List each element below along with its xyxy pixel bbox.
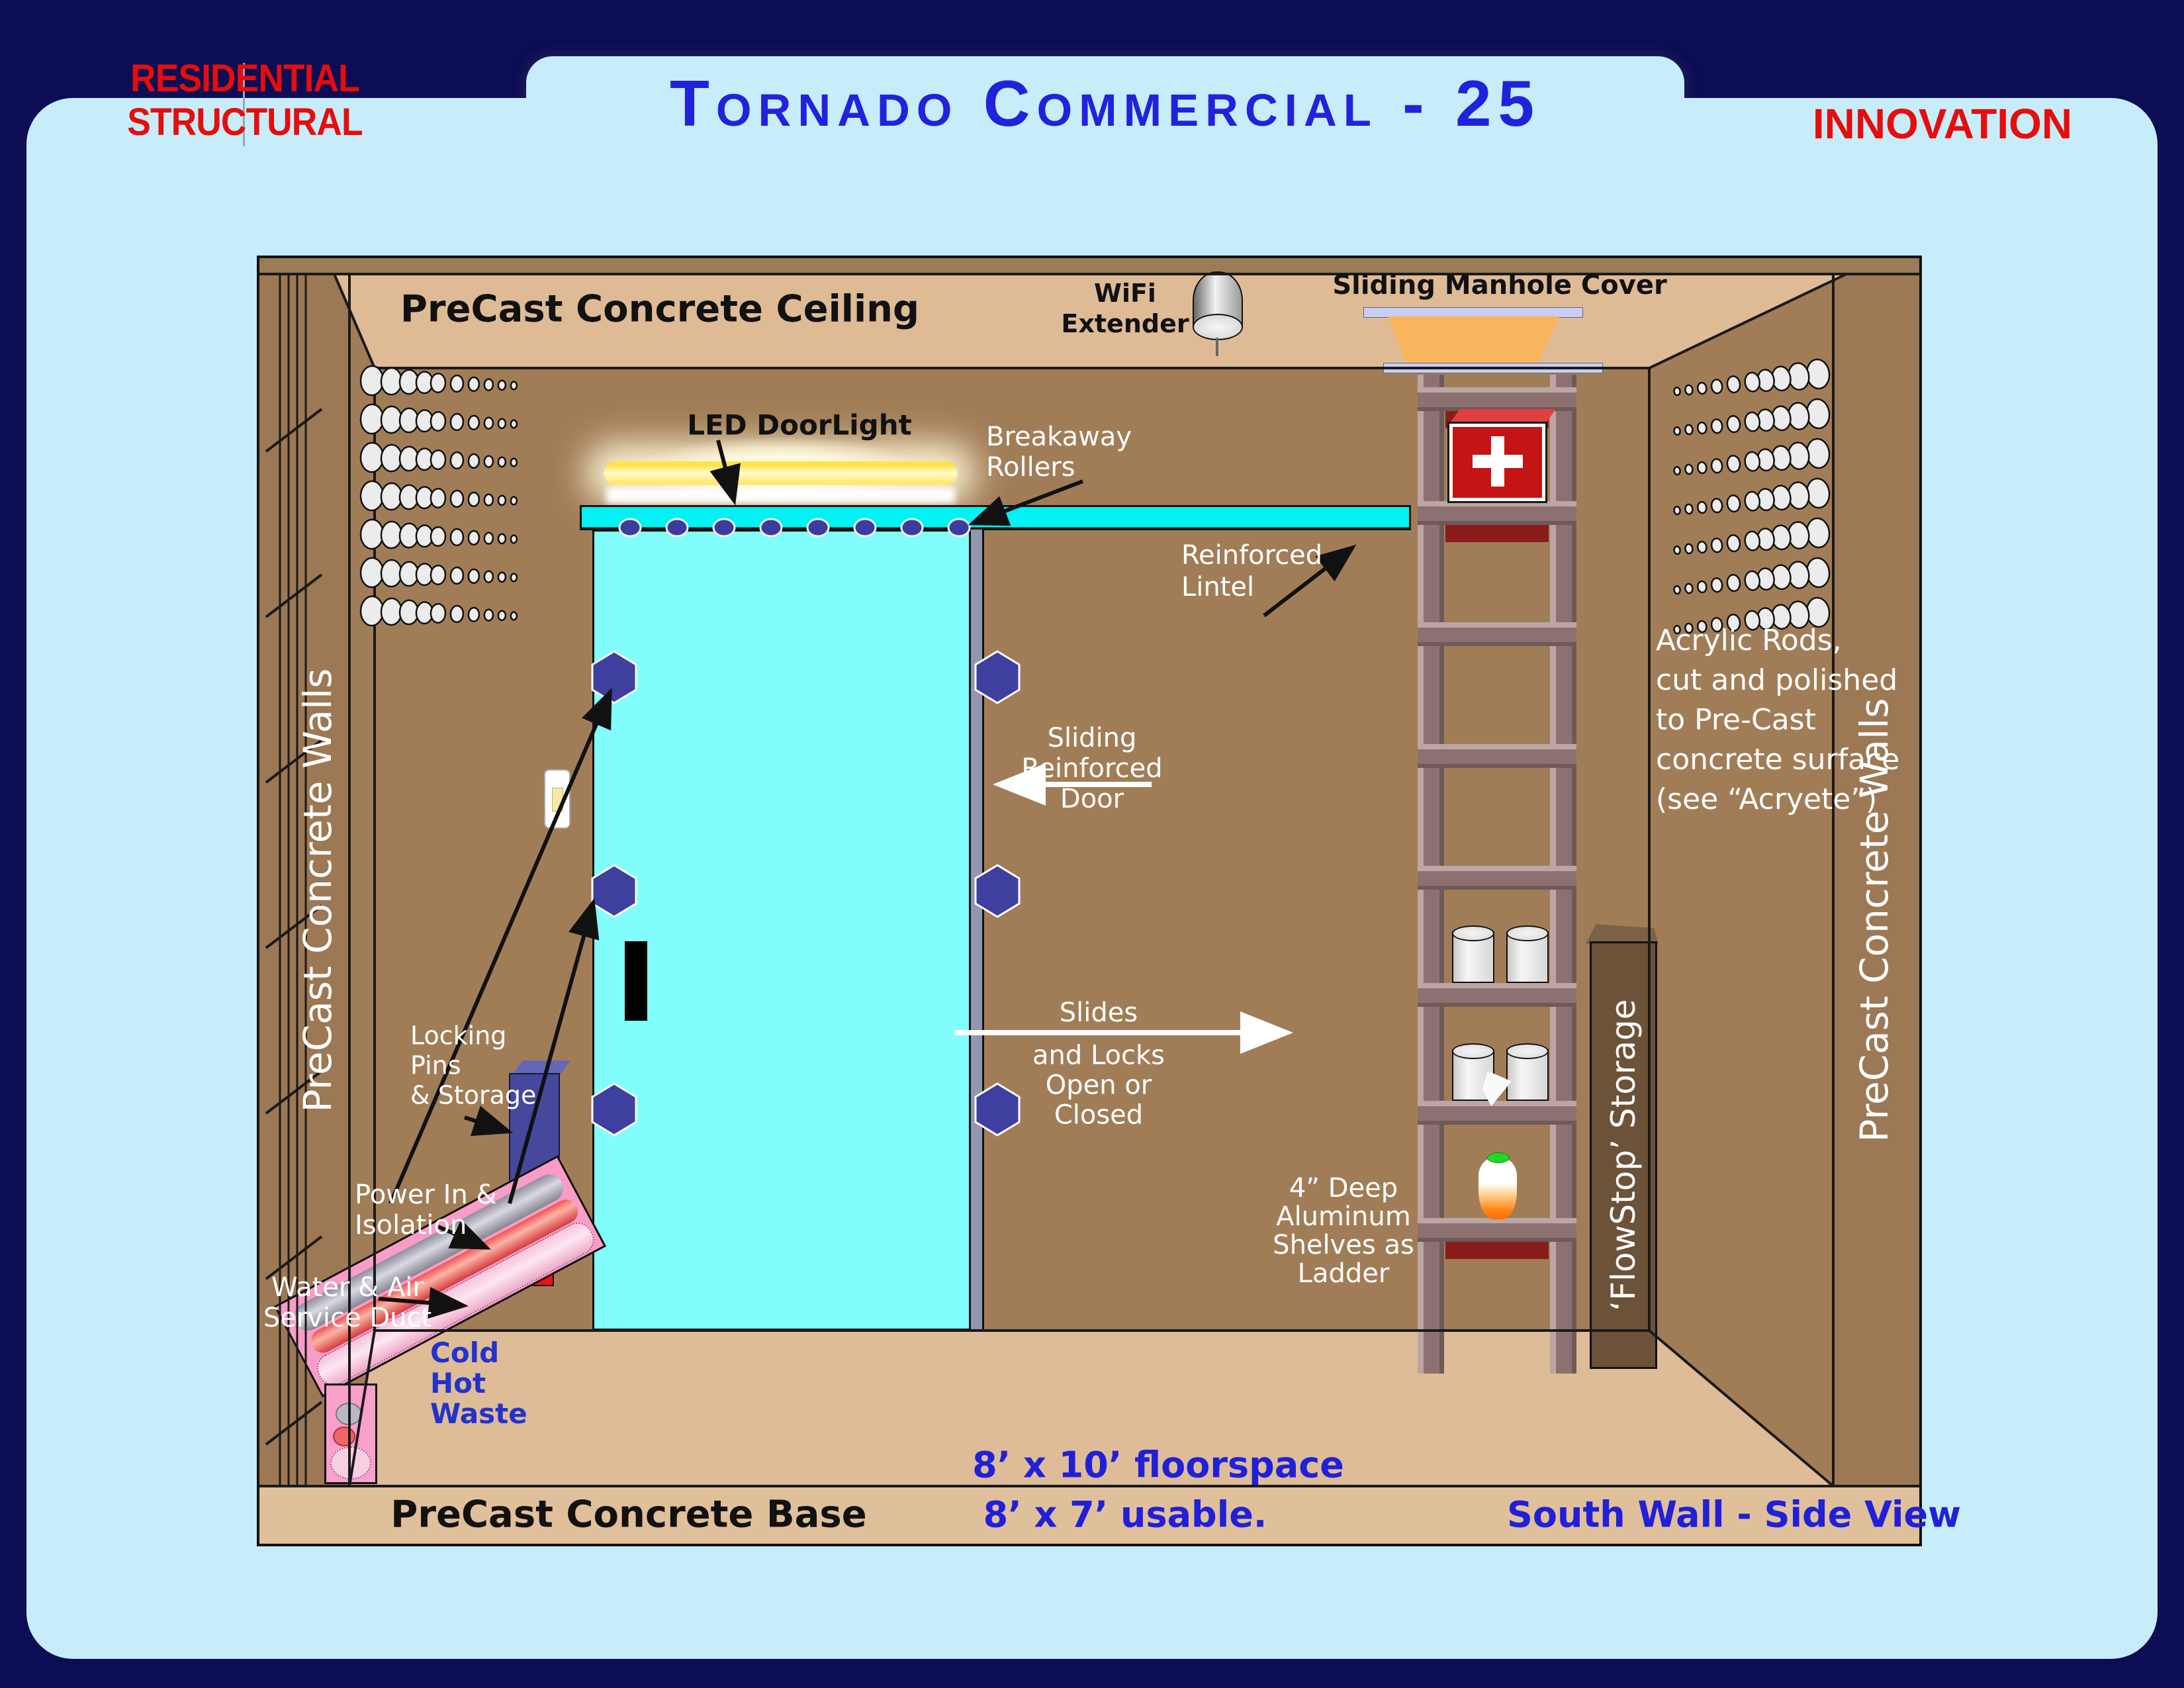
ladder-rung xyxy=(1418,744,1576,768)
ladder-rung xyxy=(1418,1101,1576,1125)
innovation-label: INNOVATION xyxy=(1787,99,2098,148)
ladder-rung xyxy=(1418,622,1576,646)
shelter-diagram: PreCast Concrete Ceiling WiFi Extender S… xyxy=(259,258,1919,1544)
wifi-base xyxy=(1193,314,1243,340)
structural-line: STRUCTURAL xyxy=(111,101,379,144)
shelf-back-red xyxy=(1445,525,1549,542)
usable-label: 8’ x 7’ usable. xyxy=(983,1494,1267,1536)
page-title: Tornado Commercial - 25 xyxy=(609,66,1602,141)
ladder-rung xyxy=(1418,1218,1576,1242)
door-handle-icon xyxy=(625,941,647,1021)
sliding-door xyxy=(592,530,971,1331)
locking-pins-label: Locking Pins & Storage xyxy=(410,1021,536,1111)
base-label: PreCast Concrete Base xyxy=(390,1493,866,1536)
water-air-label: Water & Air Service Duct xyxy=(263,1272,432,1333)
bottle-cap xyxy=(1487,1152,1510,1163)
door-edge-strip xyxy=(971,530,984,1331)
storage-can xyxy=(1506,931,1549,983)
manhole-label: Sliding Manhole Cover xyxy=(1332,270,1666,301)
sliding-door-label: Sliding Reinforced Door xyxy=(1021,723,1162,814)
wifi-label: WiFi Extender xyxy=(1061,278,1189,339)
led-label: LED DoorLight xyxy=(687,409,911,442)
can-lid xyxy=(1452,1043,1494,1059)
led-underlight xyxy=(606,487,955,503)
led-doorlight-icon xyxy=(604,461,958,485)
ladder-rung xyxy=(1418,387,1576,411)
can-lid xyxy=(1506,1043,1549,1059)
ladder-rung xyxy=(1418,983,1576,1007)
waste-pipe-end-icon xyxy=(330,1446,371,1479)
storage-can xyxy=(1506,1049,1549,1101)
residential-structural-label: RESIDENTIAL STRUCTURAL xyxy=(111,57,379,144)
manhole-rail-icon xyxy=(1363,307,1583,318)
top-beam xyxy=(259,258,1919,274)
can-lid xyxy=(1452,925,1494,941)
lintel-label: Reinforced Lintel xyxy=(1181,539,1322,603)
can-lid xyxy=(1506,925,1549,941)
hot-pipe-end-icon xyxy=(333,1427,355,1446)
switch-rocker xyxy=(552,788,563,812)
manhole-cover-icon xyxy=(1385,316,1563,363)
manhole-rail-icon xyxy=(1383,363,1603,373)
acrylic-rods-label: Acrylic Rods, cut and polished to Pre-Ca… xyxy=(1656,621,1899,820)
power-label: Power In & Isolation xyxy=(355,1180,497,1241)
first-aid-kit-icon xyxy=(1449,424,1545,501)
flask-bottle-icon xyxy=(1479,1157,1517,1219)
locks-label: and Locks Open or Closed xyxy=(1032,1041,1165,1131)
service-duct-end xyxy=(324,1383,377,1484)
left-wall-label: PreCast Concrete Walls xyxy=(295,668,340,1112)
wifi-antenna xyxy=(1216,338,1218,356)
view-label: South Wall - Side View xyxy=(1507,1494,1961,1536)
ceiling-label: PreCast Concrete Ceiling xyxy=(400,288,919,331)
cold-pipe-end-icon xyxy=(336,1403,362,1425)
pipes-label: Cold Hot Waste xyxy=(430,1338,527,1429)
flowstop-label: ‘FlowStop’ Storage xyxy=(1604,999,1643,1311)
cross-icon xyxy=(1473,455,1523,468)
slides-label: Slides xyxy=(1060,998,1138,1028)
floorspace-label: 8’ x 10’ floorspace xyxy=(972,1444,1344,1486)
shelf-back-red xyxy=(1445,1242,1549,1259)
residential-line: RESIDENTIAL xyxy=(111,57,379,101)
ladder-rung xyxy=(1418,501,1576,525)
light-switch-icon xyxy=(544,769,570,829)
shelves-label: 4” Deep Aluminum Shelves as Ladder xyxy=(1273,1174,1414,1288)
storage-can xyxy=(1452,931,1494,983)
ladder-rung xyxy=(1418,866,1576,890)
door-track xyxy=(580,505,1411,530)
wifi-extender-icon xyxy=(1193,271,1243,353)
first-aid-kit-top xyxy=(1449,409,1556,424)
breakaway-label: Breakaway Rollers xyxy=(986,422,1132,483)
